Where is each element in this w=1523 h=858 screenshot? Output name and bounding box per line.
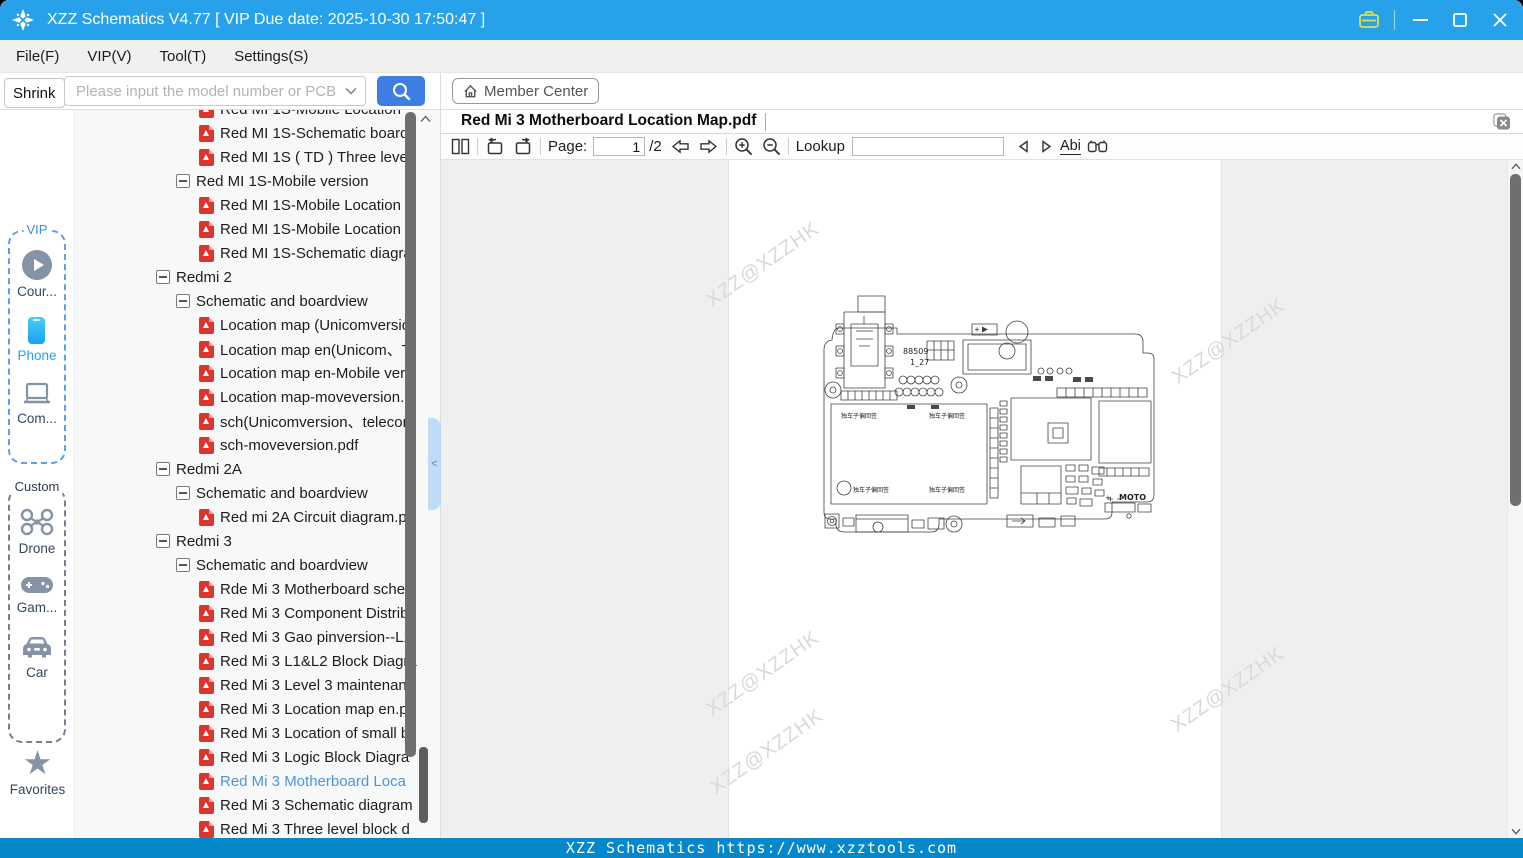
pdf-icon — [199, 509, 214, 526]
pdf-icon — [199, 437, 214, 454]
vip-group-label: VIP — [24, 222, 51, 237]
member-center-button[interactable]: Member Center — [452, 78, 599, 104]
pdf-icon — [199, 725, 214, 742]
tree-item[interactable]: Red MI 1S-Mobile Location r — [75, 193, 440, 217]
scroll-down-icon[interactable] — [1511, 828, 1521, 835]
app-window: XZZ Schematics V4.77 [ VIP Due date: 202… — [0, 0, 1523, 858]
tree-item[interactable]: Red Mi 3 Level 3 maintenanc — [75, 673, 440, 697]
pdf-toolbar: Page: /2 Lookup — [441, 134, 1523, 160]
tree-item[interactable]: Red mi 2A Circuit diagram.pd — [75, 505, 440, 529]
tree-group[interactable]: Schematic and boardview — [75, 553, 440, 577]
search-button[interactable] — [377, 76, 425, 106]
pdf-icon — [199, 389, 214, 406]
pdf-icon — [199, 701, 214, 718]
sidebar-item-favorites[interactable]: ★ Favorites — [0, 748, 75, 797]
tree-item-selected[interactable]: Red Mi 3 Motherboard Loca — [75, 769, 440, 793]
status-bar: XZZ Schematics https://www.xzztools.com — [0, 838, 1523, 858]
model-search-box — [64, 76, 366, 106]
tree-item[interactable]: Location map (Unicomversio — [75, 313, 440, 337]
collapse-icon[interactable] — [176, 486, 190, 500]
pdf-icon — [199, 653, 214, 670]
tree-item[interactable]: Red Mi 3 Three level block d — [75, 817, 440, 838]
sidebar-item-phone[interactable]: Phone — [17, 317, 56, 363]
computer-label: Com... — [17, 411, 57, 426]
tree-item[interactable]: Red Mi 3 Gao pinversion--L1 — [75, 625, 440, 649]
tree-scrollbar-thumb[interactable] — [405, 112, 416, 757]
collapse-icon[interactable] — [176, 174, 190, 188]
app-logo-icon — [11, 8, 35, 32]
search-input[interactable] — [74, 82, 345, 101]
search-row: Shrink Member Center — [0, 73, 1523, 110]
board-area-label: 独车子偏回签 — [841, 412, 877, 420]
pdf-icon — [199, 245, 214, 262]
close-tab-icon[interactable] — [1493, 113, 1511, 130]
rotate-left-icon[interactable] — [485, 137, 505, 156]
car-label: Car — [26, 665, 48, 680]
maximize-button[interactable] — [1445, 5, 1475, 35]
board-area-label: 独车子偏回签 — [929, 486, 965, 494]
pdf-icon — [199, 197, 214, 214]
titlebar-divider — [1394, 10, 1395, 30]
pdf-icon — [199, 605, 214, 622]
board-area-label: 独车子偏回签 — [929, 412, 965, 420]
home-icon — [463, 84, 478, 99]
tab-separator — [765, 113, 766, 131]
pdf-icon — [199, 749, 214, 766]
search-icon — [391, 81, 412, 102]
sidebar-item-drone[interactable]: Drone — [19, 507, 56, 556]
pdf-icon — [199, 773, 214, 790]
tree-item[interactable]: Red Mi 3 Location map en.pd — [75, 697, 440, 721]
panel-scrollbar-thumb[interactable] — [419, 747, 428, 823]
tree-rows: Red MI 1S-Mobile Location Red MI 1S-Sche… — [75, 110, 440, 838]
find-previous-icon[interactable] — [1016, 139, 1031, 154]
status-text: XZZ Schematics https://www.xzztools.com — [566, 839, 957, 857]
board-ref-a: 88509 — [903, 347, 928, 356]
pdf-icon — [199, 149, 214, 166]
tree-item[interactable]: Red MI 1S ( TD ) Three level — [75, 145, 440, 169]
tab-bar: Red Mi 3 Motherboard Location Map.pdf — [441, 110, 1523, 134]
rotate-right-icon[interactable] — [513, 137, 533, 156]
collapse-icon[interactable] — [156, 270, 170, 284]
tree-item[interactable]: Red Mi 3 Logic Block Diagra — [75, 745, 440, 769]
schematic-tree-panel: Red MI 1S-Mobile Location Red MI 1S-Sche… — [75, 110, 440, 838]
tree-group[interactable]: Redmi 3 — [75, 529, 440, 553]
sidebar-item-car[interactable]: Car — [19, 633, 55, 680]
pdf-icon — [199, 221, 214, 238]
page-number-input[interactable] — [593, 137, 645, 156]
pdf-viewer: Red Mi 3 Motherboard Location Map.pdf Pa… — [441, 110, 1523, 838]
car-icon — [19, 633, 55, 661]
menu-tool[interactable]: Tool(T) — [146, 48, 221, 65]
board-plus-label: + — [1105, 494, 1111, 502]
courses-label: Cour... — [17, 284, 57, 299]
pdf-icon — [199, 110, 214, 118]
find-next-icon[interactable] — [1039, 139, 1054, 154]
vip-briefcase-icon[interactable] — [1354, 5, 1384, 35]
lookup-input[interactable] — [852, 137, 1004, 156]
pdf-tab[interactable]: Red Mi 3 Motherboard Location Map.pdf — [461, 112, 756, 130]
scroll-up-icon[interactable] — [1511, 163, 1521, 170]
favorites-label: Favorites — [10, 782, 66, 797]
pdf-icon — [199, 341, 214, 358]
custom-group-label: Custom — [12, 479, 63, 494]
motherboard-diagram: 88509 1_27 独车子偏回签 独车子偏回签 独车子偏回签 独车子偏回签 +… — [811, 268, 1166, 540]
close-button[interactable] — [1485, 5, 1515, 35]
tree-item[interactable]: Red MI 1S-Schematic board — [75, 121, 440, 145]
tree-item[interactable]: Red Mi 3 Component Distrib — [75, 601, 440, 625]
collapse-panel-handle[interactable]: < — [428, 418, 441, 510]
pdf-icon — [199, 125, 214, 142]
play-circle-icon — [22, 250, 52, 280]
game-label: Gam... — [17, 600, 58, 615]
phone-label: Phone — [17, 348, 56, 363]
previous-page-icon[interactable] — [670, 139, 691, 154]
window-title: XZZ Schematics V4.77 [ VIP Due date: 202… — [47, 11, 485, 29]
sidebar-item-courses[interactable]: Cour... — [17, 250, 57, 299]
pdf-icon — [199, 821, 214, 838]
gamepad-icon — [19, 574, 55, 596]
title-bar: XZZ Schematics V4.77 [ VIP Due date: 202… — [0, 0, 1523, 40]
tree-group[interactable]: Redmi 2A — [75, 457, 440, 481]
menu-file[interactable]: File(F) — [0, 48, 73, 65]
minimize-button[interactable] — [1405, 5, 1435, 35]
pdf-icon — [199, 797, 214, 814]
menu-vip[interactable]: VIP(V) — [73, 48, 145, 65]
tree-group[interactable]: Schematic and boardview — [75, 289, 440, 313]
next-page-icon[interactable] — [698, 139, 719, 154]
menu-bar: File(F) VIP(V) Tool(T) Settings(S) — [0, 40, 1523, 73]
two-page-view-icon[interactable] — [451, 138, 470, 155]
tree-group[interactable]: Redmi 2 — [75, 265, 440, 289]
vip-group: VIP Cour... Phone Com... — [8, 230, 66, 464]
pdf-icon — [199, 677, 214, 694]
menu-settings[interactable]: Settings(S) — [220, 48, 322, 65]
lookup-label: Lookup — [796, 138, 845, 155]
tree-item[interactable]: Location map en-Mobile ver — [75, 361, 440, 385]
pdf-icon — [199, 365, 214, 382]
tree-group[interactable]: Schematic and boardview — [75, 481, 440, 505]
tree-item[interactable]: Rde Mi 3 Motherboard scher — [75, 577, 440, 601]
tree-item[interactable]: Location map en(Unicom、T — [75, 337, 440, 361]
tree-item[interactable]: Red MI 1S-Mobile Location — [75, 110, 440, 121]
drone-label: Drone — [19, 541, 56, 556]
viewer-scrollbar-thumb[interactable] — [1510, 174, 1521, 506]
tree-item[interactable]: Red MI 1S-Mobile Location r — [75, 217, 440, 241]
pdf-canvas[interactable]: XZZ@XZZHK XZZ@XZZHK XZZ@XZZHK XZZ@XZZHK … — [441, 160, 1523, 838]
tree-group[interactable]: Red MI 1S-Mobile version — [75, 169, 440, 193]
tree-item[interactable]: Red Mi 3 Schematic diagram — [75, 793, 440, 817]
tree-item[interactable]: sch-moveversion.pdf — [75, 433, 440, 457]
collapse-icon[interactable] — [156, 462, 170, 476]
board-ref-b: 1_27 — [910, 358, 929, 367]
board-moto-label: MOTO — [1119, 493, 1146, 502]
tree-item[interactable]: Red Mi 3 L1&L2 Block Diagra — [75, 649, 440, 673]
member-center-label: Member Center — [484, 83, 588, 100]
tree-item[interactable]: Location map-moveversion.p — [75, 385, 440, 409]
viewer-scrollbar[interactable] — [1507, 160, 1523, 838]
tree-item[interactable]: Red Mi 3 Location of small b — [75, 721, 440, 745]
collapse-icon[interactable] — [176, 558, 190, 572]
star-icon: ★ — [23, 748, 53, 778]
tree-scroll-up-icon[interactable] — [420, 115, 431, 123]
collapse-icon[interactable] — [156, 534, 170, 548]
page-label: Page: — [548, 138, 587, 155]
board-area-label: 独车子偏回签 — [853, 486, 889, 494]
chevron-down-icon[interactable] — [345, 87, 357, 95]
shrink-button[interactable]: Shrink — [4, 78, 65, 108]
pdf-icon — [199, 581, 214, 598]
custom-group: Custom Drone Gam... — [8, 487, 66, 743]
pdf-icon — [199, 629, 214, 646]
zoom-in-icon[interactable] — [734, 137, 753, 156]
drone-icon — [19, 507, 55, 537]
category-sidebar: VIP Cour... Phone Com... Custom Dron — [0, 110, 75, 838]
match-case-icon[interactable]: Abi — [1060, 139, 1081, 155]
zoom-out-icon[interactable] — [762, 137, 781, 156]
pdf-icon — [199, 317, 214, 334]
pdf-icon — [199, 413, 214, 430]
tree-item[interactable]: sch(Unicomversion、telecom — [75, 409, 440, 433]
phone-icon — [28, 317, 45, 344]
tree-item[interactable]: Red MI 1S-Schematic diagra — [75, 241, 440, 265]
match-whole-word-icon[interactable] — [1087, 139, 1108, 154]
laptop-icon — [21, 381, 53, 407]
collapse-icon[interactable] — [176, 294, 190, 308]
page-total: /2 — [649, 138, 662, 155]
sidebar-item-game[interactable]: Gam... — [17, 574, 58, 615]
sidebar-item-computer[interactable]: Com... — [17, 381, 57, 426]
